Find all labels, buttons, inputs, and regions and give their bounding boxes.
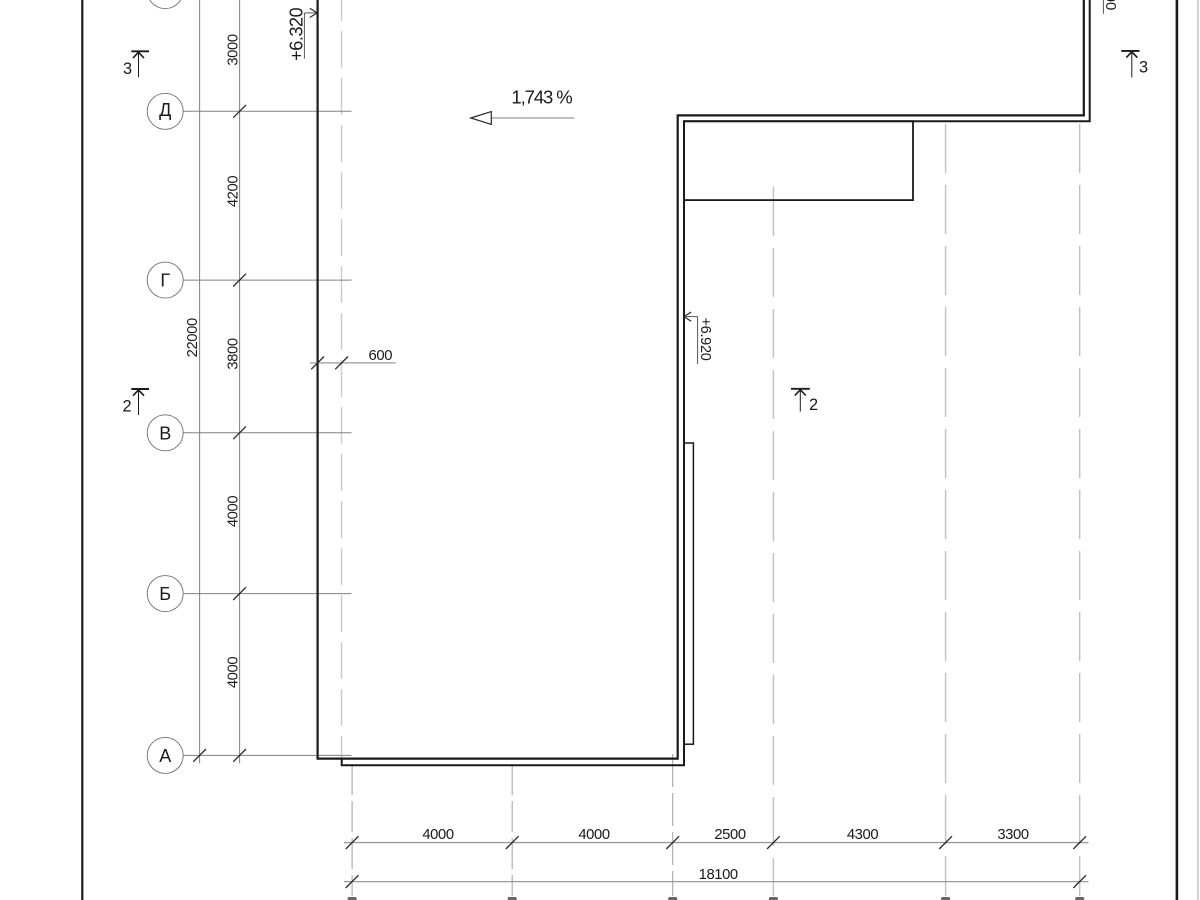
svg-text:3300: 3300: [997, 827, 1028, 843]
svg-text:4000: 4000: [225, 496, 241, 527]
svg-text:Б: Б: [159, 584, 171, 604]
svg-text:18100: 18100: [699, 867, 738, 883]
svg-text:1,743 %: 1,743 %: [511, 87, 572, 108]
svg-text:2: 2: [809, 396, 818, 414]
svg-text:2500: 2500: [714, 827, 745, 843]
svg-text:4000: 4000: [578, 827, 609, 843]
svg-text:22000: 22000: [185, 318, 201, 357]
svg-text:3: 3: [123, 60, 132, 78]
svg-text:А: А: [159, 746, 171, 766]
svg-text:+6.320: +6.320: [287, 7, 307, 61]
svg-text:4000: 4000: [422, 827, 453, 843]
svg-text:Г: Г: [160, 271, 170, 291]
svg-text:4300: 4300: [847, 827, 878, 843]
svg-text:+9.200: +9.200: [1102, 0, 1119, 10]
svg-text:3800: 3800: [225, 338, 241, 369]
svg-text:4200: 4200: [225, 176, 241, 207]
svg-text:+6.920: +6.920: [697, 318, 713, 361]
svg-text:Д: Д: [159, 100, 171, 120]
svg-text:4000: 4000: [225, 657, 241, 688]
svg-text:В: В: [159, 423, 171, 443]
svg-text:600: 600: [369, 348, 393, 364]
svg-text:3000: 3000: [225, 34, 241, 65]
svg-text:2: 2: [122, 398, 131, 416]
svg-text:3: 3: [1139, 59, 1148, 77]
